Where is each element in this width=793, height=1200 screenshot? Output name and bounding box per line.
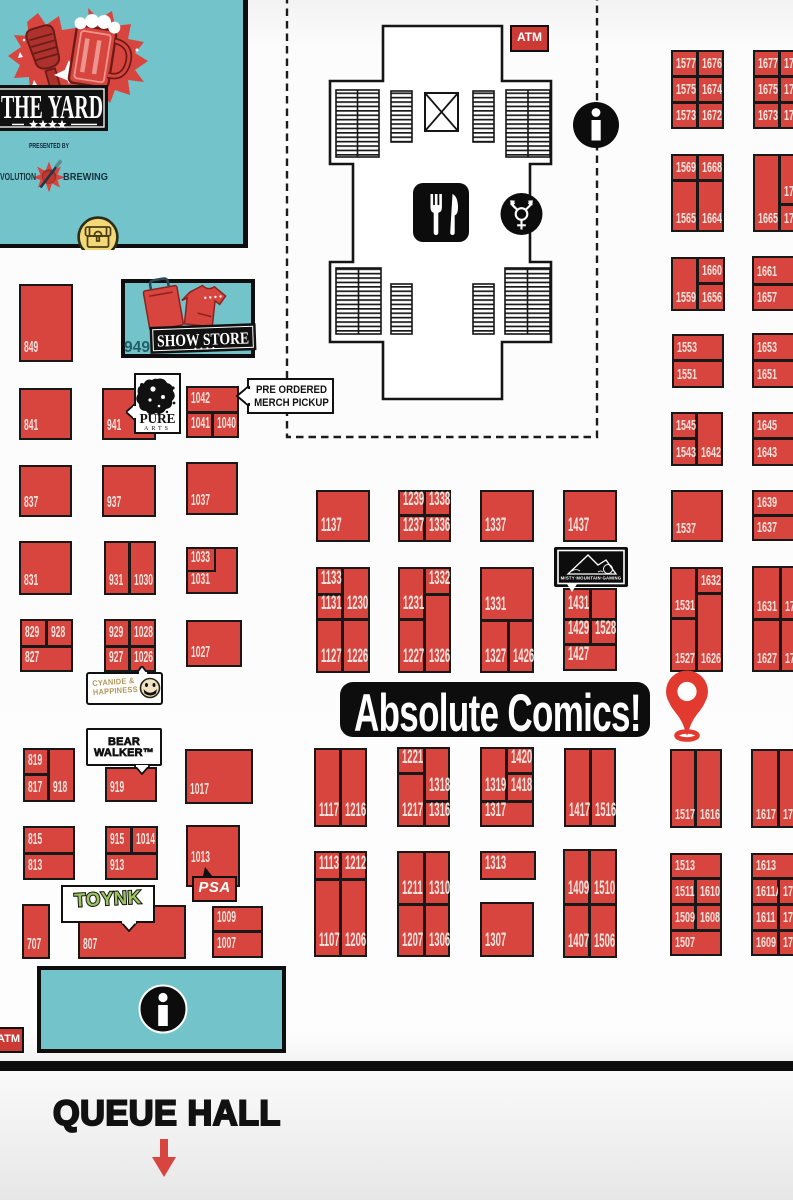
- svg-text:PURE: PURE: [140, 411, 176, 426]
- svg-text:BREWING: BREWING: [63, 172, 108, 183]
- svg-text:SHOW STORE: SHOW STORE: [157, 328, 250, 350]
- svg-text:VOLUTION: VOLUTION: [0, 172, 36, 183]
- svg-text:949: 949: [124, 339, 150, 356]
- svg-text:ARTS: ARTS: [144, 426, 171, 432]
- svg-text:PRESENTED BY: PRESENTED BY: [29, 141, 69, 150]
- svg-text:MISTY·MOUNTAIN·GAMING: MISTY·MOUNTAIN·GAMING: [561, 576, 622, 581]
- svg-text:THE YARD: THE YARD: [1, 89, 103, 126]
